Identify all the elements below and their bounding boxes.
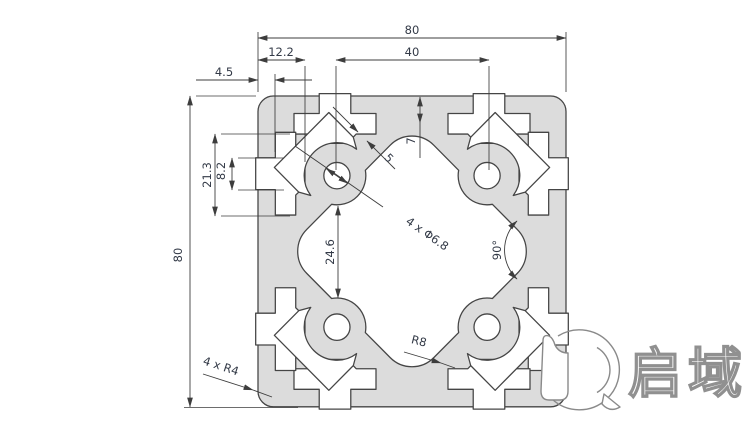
dim-text-height-80: 80 [171,248,185,263]
dim-text-24-6: 24.6 [323,239,337,265]
dim-text-40: 40 [405,45,420,59]
dim-text-7: 7 [404,137,418,144]
leader-r4 [203,374,253,390]
dim-text-21-3: 21.3 [200,162,214,188]
cad-drawing-page: 80 40 12.2 4.5 80 21.3 8.2 24.6 7 5 4 x … [0,0,751,428]
mounting-hole-br [474,314,500,340]
mounting-hole-bl [324,314,350,340]
profile-drawing: 80 40 12.2 4.5 80 21.3 8.2 24.6 7 5 4 x … [0,0,751,428]
mounting-hole-tr [474,162,500,188]
dim-text-width-80: 80 [405,23,420,37]
dim-text-8-2: 8.2 [214,162,228,180]
dim-text-r4: 4 x R4 [201,354,240,379]
logo-text: 启域 [628,342,748,405]
brand-logo: 启域 [541,330,748,410]
dim-text-4-5: 4.5 [215,65,233,79]
dim-text-12-2: 12.2 [268,45,294,59]
dim-text-90deg: 90° [490,240,504,260]
logo-inner-ring [597,348,610,393]
logo-tail [602,394,620,409]
